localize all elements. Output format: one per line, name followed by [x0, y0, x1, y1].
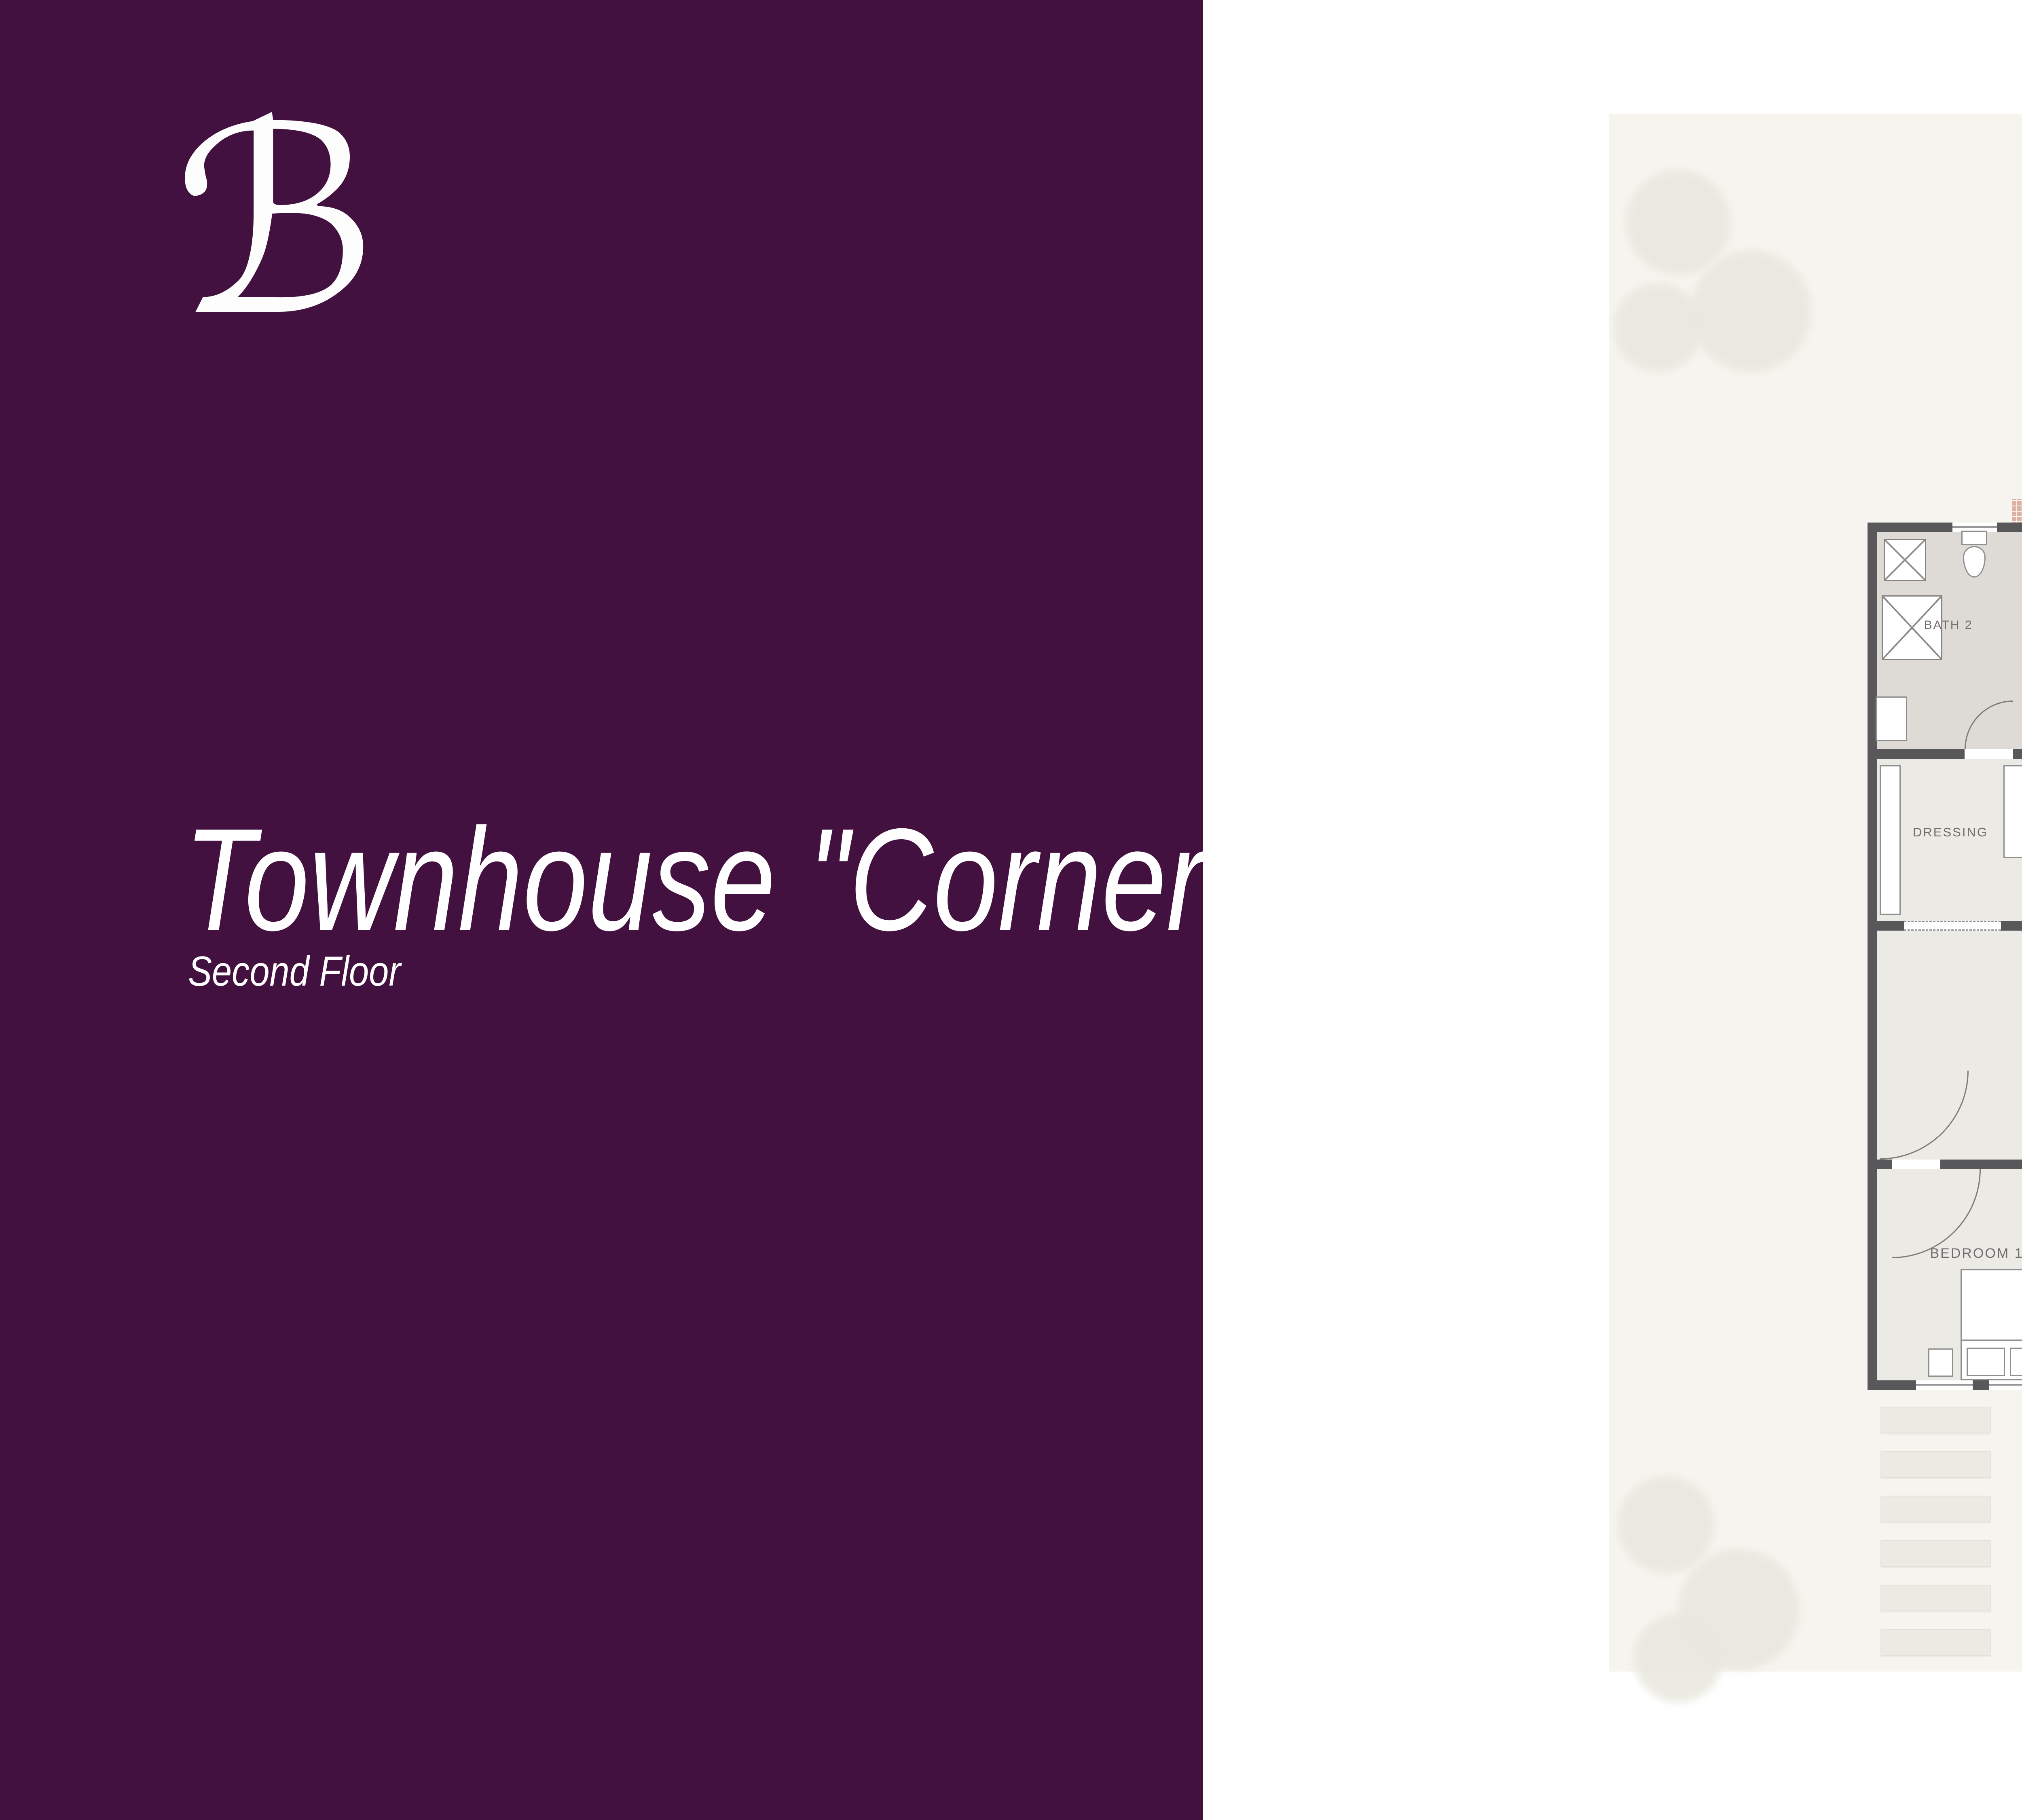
brand-logo-b-icon: ℬ	[162, 93, 388, 352]
garden-step	[1880, 1540, 1991, 1567]
closet	[2003, 765, 2022, 858]
page-title: Townhouse "Corner"	[184, 807, 1246, 952]
tree-icon	[1690, 251, 1812, 372]
page-subtitle: Second Floor	[188, 950, 401, 993]
pillow	[2010, 1348, 2022, 1376]
tree-icon	[1634, 1614, 1723, 1703]
wall	[1868, 523, 2022, 532]
dressing-opening	[1904, 921, 2001, 931]
garden-step	[1880, 1585, 1991, 1611]
floor-plan: TERRACE BATH 2 BEDROOM 2 DRESSING BEDROO…	[1868, 523, 2022, 1424]
tree-icon	[1614, 283, 1703, 372]
bed-blanket-line	[1962, 1340, 2022, 1341]
window	[1916, 1380, 1973, 1390]
nightstand	[1928, 1348, 1953, 1377]
window	[1989, 1380, 2022, 1390]
sink-icon	[1876, 696, 1907, 741]
garden-step	[1880, 1629, 1991, 1656]
toilet-tank-icon	[1961, 531, 1987, 545]
wall	[1868, 523, 1877, 1390]
closet	[1880, 765, 1901, 915]
tree-icon	[1618, 1476, 1715, 1573]
door-opening	[1892, 1160, 1940, 1169]
label-bedroom1: BEDROOM 1	[1916, 1246, 2022, 1261]
tree-icon	[1626, 170, 1731, 275]
label-bath2: BATH 2	[1904, 618, 1993, 632]
wall	[2001, 921, 2022, 931]
door-opening	[1965, 749, 2013, 759]
shaft-icon	[1884, 539, 1926, 581]
brand-panel: ℬ Townhouse "Corner" Second Floor	[0, 0, 1203, 1820]
wall	[1868, 921, 1904, 931]
garden-step	[1880, 1451, 1991, 1478]
label-dressing: DRESSING	[1890, 825, 2011, 840]
garden-step	[1880, 1496, 1991, 1522]
pillow	[1967, 1348, 2005, 1376]
wall	[1868, 1160, 2022, 1169]
